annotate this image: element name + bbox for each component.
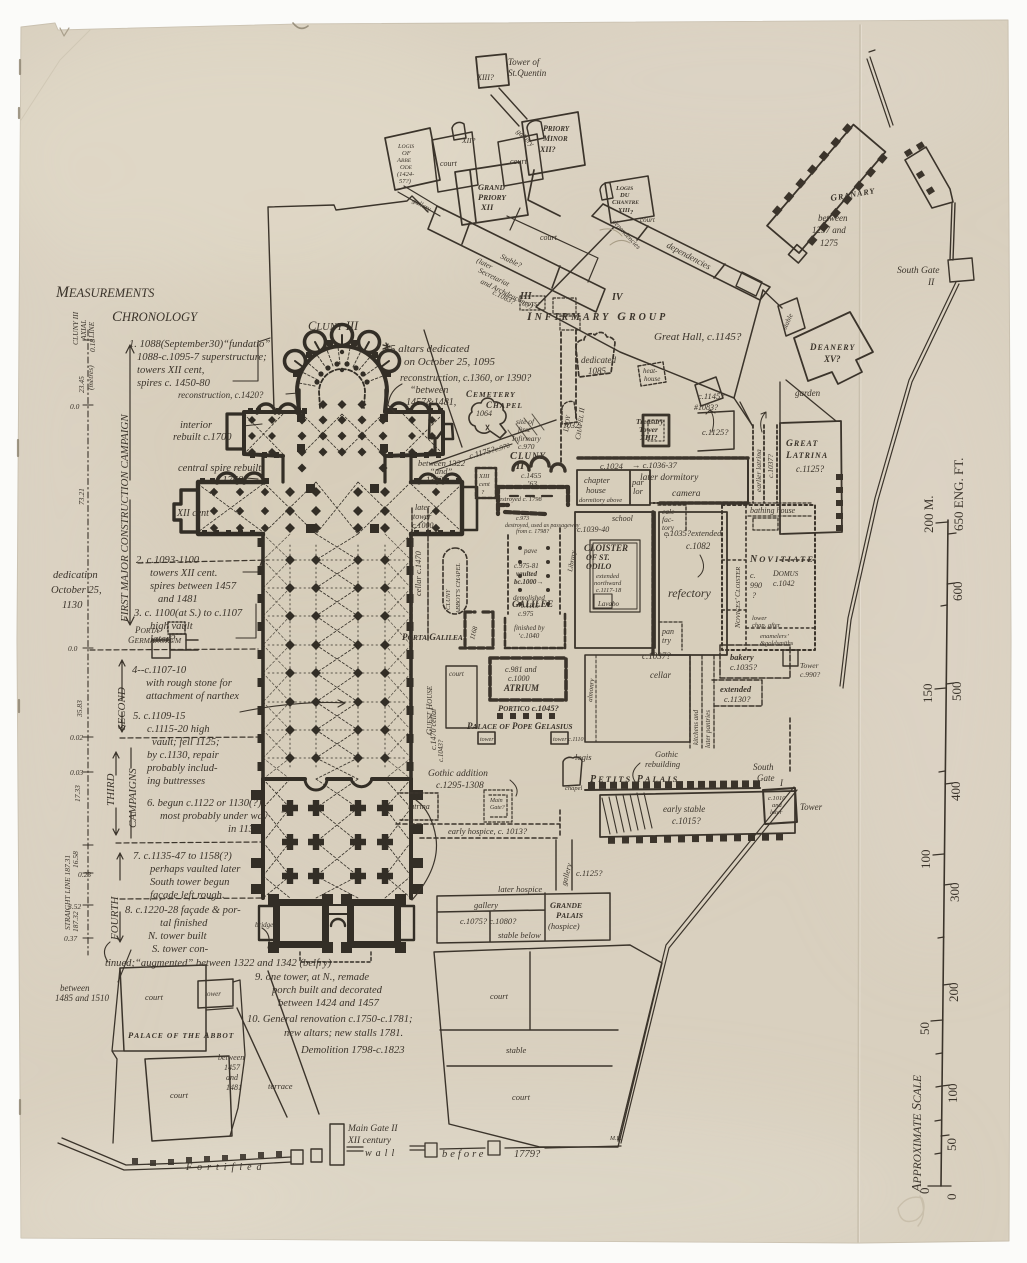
svg-text:cellar c.1470: cellar c.1470 [413,550,423,596]
svg-text:South: South [753,762,774,772]
svg-text:perhaps vaulted later: perhaps vaulted later [149,864,241,875]
svg-text:PALAIS: PALAIS [556,910,583,920]
svg-text:Gothic addition: Gothic addition [428,769,488,779]
svg-text:camera: camera [672,489,701,499]
svg-text:8. c.1220-28 façade & por-: 8. c.1220-28 façade & por- [125,905,241,916]
svg-text:c.1117-18: c.1117-18 [596,587,622,594]
svg-text:later hospice: later hospice [498,884,542,894]
svg-text:57?): 57?) [399,178,411,185]
svg-text:CLUNY: CLUNY [445,588,452,610]
svg-text:1130: 1130 [62,600,83,611]
svg-text:early stable: early stable [663,804,705,814]
svg-text:cellar: cellar [650,670,671,680]
svg-text:DEANERY: DEANERY [809,342,855,352]
svg-text:Demolition 1798-c.1823: Demolition 1798-c.1823 [300,1045,405,1056]
svg-text:1257 and: 1257 and [812,225,846,235]
svg-text:c.1082: c.1082 [686,541,711,551]
svg-text:Tower: Tower [800,802,823,812]
svg-text:and 1481: and 1481 [158,594,198,605]
svg-text:extended: extended [596,573,620,580]
svg-text:1064: 1064 [476,409,492,418]
svg-text:and: and [226,1073,239,1082]
svg-text:c.970: c.970 [518,442,535,451]
svg-text:17.33: 17.33 [73,785,82,802]
svg-text:Gothic: Gothic [655,749,678,759]
svg-text:LOGIS: LOGIS [615,185,633,192]
svg-text:spires between 1457: spires between 1457 [150,581,237,592]
svg-text:Tower of: Tower of [508,57,541,67]
svg-text:GRANDE: GRANDE [550,900,582,910]
svg-text:vaulted: vaulted [516,570,537,578]
svg-text:with rough stone for: with rough stone for [146,678,233,689]
svg-text:XV?: XV? [823,354,841,364]
svg-text:0.37: 0.37 [64,934,77,943]
svg-text:c.1125?: c.1125? [576,868,603,878]
svg-text:between: between [218,1053,244,1062]
svg-text:vault; fell 1125;: vault; fell 1125; [152,737,219,748]
svg-text:(metres): (metres) [86,365,95,390]
svg-text:1. 1088(September30)“fundatio”: 1. 1088(September30)“fundatio” [129,339,270,350]
svg-text:c.1024: c.1024 [600,461,624,471]
svg-text:200 M.: 200 M. [921,495,936,533]
svg-text:tal finished: tal finished [160,918,208,929]
svg-text:FIRST MAJOR CONSTRUCTION CAMPA: FIRST MAJOR CONSTRUCTION CAMPAIGN [119,414,131,623]
svg-text:ABBE: ABBE [396,157,412,164]
svg-text:attachment of narthex: attachment of narthex [146,691,239,702]
svg-text:1457: 1457 [224,1063,241,1072]
svg-text:St.Quentin: St.Quentin [508,68,547,78]
svg-text:100: 100 [945,1084,960,1104]
svg-text:1485 and 1510: 1485 and 1510 [55,993,110,1003]
svg-text:1779?: 1779? [514,1149,541,1160]
svg-text:c.1295-1308: c.1295-1308 [436,781,484,791]
svg-text:rebuilding: rebuilding [645,759,680,769]
svg-text:PALACE OF THE ABBOT: PALACE OF THE ABBOT [128,1030,234,1040]
svg-text:CAMPAIGNS: CAMPAIGNS [127,768,139,828]
svg-text:c.1000: c.1000 [412,521,434,530]
svg-text:gallery: gallery [474,900,498,910]
svg-text:refectory: refectory [668,586,712,600]
svg-text:Great Hall, c.1145?: Great Hall, c.1145? [654,331,742,343]
svg-text:II: II [927,278,935,288]
svg-text:later: later [415,503,431,512]
svg-text:court: court [440,159,458,168]
svg-text:court: court [145,992,164,1002]
svg-text:c.1115-20 high: c.1115-20 high [147,724,210,735]
svg-text:1481: 1481 [226,1083,242,1092]
svg-text:→ c.1036-37: → c.1036-37 [632,460,678,470]
svg-text:pave: pave [523,547,537,555]
svg-text:enamelers’: enamelers’ [760,633,789,640]
svg-text:NOVITIATE: NOVITIATE [749,554,815,565]
svg-text:court: court [512,1092,531,1102]
svg-text:school: school [612,514,634,523]
svg-text:most probably under way: most probably under way [160,811,268,822]
svg-text:XII?: XII? [461,136,476,145]
svg-text:LATRINA: LATRINA [785,451,828,461]
svg-text:Lavabo: Lavabo [597,600,620,608]
svg-text:DOMUS: DOMUS [772,569,799,578]
svg-text:XII: XII [480,202,494,212]
svg-text:LOGIS: LOGIS [397,143,414,150]
svg-text:GRAND: GRAND [478,182,506,192]
svg-text:Gate?: Gate? [490,805,505,811]
svg-text:dedication: dedication [53,570,98,581]
svg-text:dedicated: dedicated [581,355,616,365]
svg-text:extended: extended [720,684,752,694]
svg-text:IV: IV [611,292,624,303]
svg-text:probably includ-: probably includ- [146,763,218,774]
svg-text:600: 600 [950,582,965,602]
svg-text:tower c.1110: tower c.1110 [553,737,583,743]
svg-text:destroyed c. 1798: destroyed c. 1798 [496,496,543,503]
svg-text:c.1043?: c.1043? [437,739,445,762]
svg-text:APPROXIMATE SCALE: APPROXIMATE SCALE [910,1075,925,1193]
svg-text:ABBOT'S CHAPEL: ABBOT'S CHAPEL [455,563,462,615]
svg-text:c.1035?: c.1035? [730,662,758,672]
svg-text:XII century: XII century [347,1136,392,1146]
svg-text:650 ENG. FT.: 650 ENG. FT. [951,458,966,531]
svg-text:c.1039-40: c.1039-40 [577,525,609,534]
svg-text:16.58: 16.58 [71,851,80,868]
svg-text:c.1037?: c.1037? [766,454,775,478]
svg-text:OF: OF [402,150,412,157]
svg-text:c.1010: c.1010 [768,795,786,802]
svg-text:pan: pan [661,627,674,636]
svg-text:c.1145?: c.1145? [698,391,725,401]
svg-text:4--c.1107-10: 4--c.1107-10 [132,665,187,676]
svg-text:0: 0 [944,1194,959,1201]
svg-text:CHRONOLOGY: CHRONOLOGY [112,309,199,325]
svg-text:THIRD: THIRD [105,774,117,806]
svg-text:c.: c. [750,571,756,580]
svg-text:0.0: 0.0 [68,644,78,653]
svg-text:0.23: 0.23 [78,870,91,879]
svg-text:later dormitory: later dormitory [640,473,699,483]
svg-text:tower: tower [413,512,432,521]
svg-text:OF ST.: OF ST. [586,553,610,562]
svg-text:1275: 1275 [820,238,839,248]
svg-text:heat-: heat- [643,367,658,375]
svg-text:0.18: 0.18 [88,339,97,352]
svg-text:3.52: 3.52 [67,902,81,911]
svg-text:1032: 1032 [563,421,579,430]
svg-text:October 25,: October 25, [51,585,102,596]
svg-text:PRIORY: PRIORY [478,192,507,202]
svg-text:PORTA GALILEA: PORTA GALILEA [402,632,463,642]
svg-text:150: 150 [920,684,935,704]
svg-text:from c. 1798?: from c. 1798? [516,528,549,535]
svg-text:73.21: 73.21 [77,488,86,505]
svg-text:before: before [442,1149,486,1160]
svg-text:CEMETERY: CEMETERY [466,389,516,399]
svg-text:II: II [515,461,525,472]
svg-text:PRIORY: PRIORY [543,124,570,133]
svg-text:XII cent: XII cent [176,508,209,519]
svg-text:lower: lower [752,615,767,622]
svg-text:c.1000: c.1000 [508,674,530,683]
svg-text:c.1035?extended: c.1035?extended [664,528,722,538]
svg-text:finished by: finished by [514,624,545,632]
svg-text:stable below: stable below [498,930,541,940]
svg-text:3. c. 1100(at S.) to c.1107: 3. c. 1100(at S.) to c.1107 [133,608,243,619]
svg-text:South Gate: South Gate [897,266,939,276]
svg-text:interior: interior [180,420,213,431]
svg-text:Main: Main [489,798,503,804]
svg-text:ODE: ODE [400,164,413,171]
svg-text:reconstruction, c.1420?: reconstruction, c.1420? [178,390,264,400]
svg-text:bathing house: bathing house [750,506,796,515]
svg-text:garden: garden [795,388,821,398]
svg-text:1088-c.1095-7 superstructure;: 1088-c.1095-7 superstructure; [137,352,267,363]
svg-text:towers XII cent.: towers XII cent. [150,568,217,579]
svg-text:court: court [540,233,558,242]
svg-text:CHANTRE: CHANTRE [612,199,639,206]
svg-text:0.0: 0.0 [70,402,80,411]
svg-text:Fortified: Fortified [185,1162,267,1173]
svg-text:10. General renovation c.1750-: 10. General renovation c.1750-c.1781; [247,1014,413,1025]
svg-text:new altars; new stalls 1781.: new altars; new stalls 1781. [284,1028,403,1039]
svg-text:ODILO: ODILO [586,562,612,571]
svg-text:c.973: c.973 [516,516,529,522]
svg-text:XIII: XIII [478,473,490,480]
svg-text:PALACE OF POPE GELASIUS: PALACE OF POPE GELASIUS [467,721,573,731]
svg-text:terrace: terrace [268,1081,293,1091]
svg-text:between 1424 and 1457: between 1424 and 1457 [278,998,380,1009]
svg-text:S. tower con-: S. tower con- [152,944,209,955]
svg-text:c.1015?: c.1015? [672,816,701,826]
svg-text:court: court [170,1090,189,1100]
svg-text:spires c. 1450-80: spires c. 1450-80 [137,378,211,389]
svg-text:FOURTH: FOURTH [109,896,121,941]
svg-text:bakery: bakery [730,652,754,662]
svg-text:bc.1000→: bc.1000→ [514,578,543,586]
svg-text:early hospice, c. 1013?: early hospice, c. 1013? [448,826,528,836]
svg-text:chap. after: chap. after [752,622,781,629]
svg-text:wall: wall [365,1148,398,1159]
svg-text:300: 300 [947,883,962,903]
svg-text:MEASUREMENTS: MEASUREMENTS [55,284,155,301]
svg-text:0.02: 0.02 [70,733,83,742]
svg-text:latrina: latrina [408,802,430,811]
svg-text:earlier latrina: earlier latrina [754,449,763,492]
svg-text:1085: 1085 [588,366,607,376]
svg-text:1342?: 1342? [426,474,448,484]
svg-text:c.1042: c.1042 [773,579,795,588]
svg-text:(1424-: (1424- [397,171,414,178]
svg-text:c.1125?: c.1125? [702,427,729,437]
svg-text:990: 990 [750,581,762,590]
svg-text:cent: cent [479,481,490,488]
svg-text:M.B.: M.B. [609,1136,622,1142]
svg-text:c.975-81: c.975-81 [514,562,539,570]
svg-text:ATRIUM: ATRIUM [503,683,540,693]
svg-text:c.981 and: c.981 and [505,665,538,674]
svg-text:c.1130?: c.1130? [724,694,751,704]
svg-text:porch built and decorated: porch built and decorated [271,985,383,996]
svg-text:PORTA: PORTA [134,625,159,635]
svg-text:between: between [60,983,90,993]
svg-text:court: court [490,991,509,1001]
svg-text:0.03: 0.03 [70,768,83,777]
svg-text:bridge: bridge [255,921,273,929]
svg-text:chapter: chapter [584,475,611,485]
svg-text:50: 50 [944,1138,959,1151]
svg-text:?: ? [752,591,756,600]
svg-text:GALILEE: GALILEE [512,600,553,610]
svg-text:#1083?: #1083? [694,403,718,412]
svg-text:kitchens and: kitchens and [692,709,700,745]
svg-text:NOVICES’ CLOISTER: NOVICES’ CLOISTER [733,567,742,629]
svg-text:towers XII cent,: towers XII cent, [137,365,204,376]
svg-text:2. c.1093-1100: 2. c.1093-1100 [136,555,200,566]
svg-text:South tower begun: South tower begun [150,877,229,888]
svg-text:(hospice): (hospice) [548,921,580,931]
svg-text:35.83: 35.83 [75,700,84,718]
svg-text:CLOISTER: CLOISTER [584,543,628,553]
svg-text:XIII?: XIII? [476,73,494,82]
svg-text:try: try [662,636,671,645]
svg-text:200: 200 [946,983,961,1003]
svg-text:23.45: 23.45 [77,376,86,393]
svg-text:GUEST HOUSE: GUEST HOUSE [424,685,434,735]
svg-text:c.1037?: c.1037? [642,651,671,661]
svg-text:187.32: 187.32 [71,911,80,932]
svg-text:stable: stable [506,1045,527,1055]
svg-text:between: between [818,213,848,223]
svg-text:&goldsmiths: &goldsmiths [760,640,794,647]
svg-text:c.975: c.975 [518,610,534,618]
svg-text:house: house [644,375,660,383]
svg-text:50: 50 [917,1022,932,1035]
svg-text:c.990?: c.990? [800,670,820,679]
svg-text:house: house [586,485,606,495]
svg-text:rebuilt c.1700: rebuilt c.1700 [173,432,232,443]
svg-text:N. tower built: N. tower built [147,931,208,942]
svg-text:SECOND: SECOND [116,687,128,730]
svg-text:c.1125?: c.1125? [796,464,825,474]
svg-text:400: 400 [948,782,963,802]
svg-text:5. c.1109-15: 5. c.1109-15 [133,711,185,722]
svg-text:100: 100 [918,850,933,870]
svg-text:façade left rough.: façade left rough. [150,890,225,901]
svg-text:MINOR: MINOR [542,134,568,143]
svg-text:PORTICO c.1045?: PORTICO c.1045? [498,703,559,713]
svg-text:500: 500 [949,682,964,702]
svg-text:‘c.1040: ‘c.1040 [518,632,540,640]
svg-text:DU: DU [619,192,630,199]
svg-text:XIII?: XIII? [639,433,658,442]
svg-text:Tower: Tower [800,661,819,670]
svg-text:later pantries: later pantries [704,710,712,748]
svg-text:ing buttresses: ing buttresses [147,776,205,787]
svg-text:tower: tower [480,737,494,743]
svg-text:GOTS?: GOTS? [522,302,540,308]
svg-text:XIII: XIII [617,207,630,214]
svg-text:GREAT: GREAT [786,439,818,449]
svg-text:on October 25, 1095: on October 25, 1095 [404,356,496,368]
svg-text:Main Gate II: Main Gate II [347,1124,398,1134]
svg-text:reconstruction, c.1360, or 139: reconstruction, c.1360, or 1390? [400,373,531,384]
svg-text:lor: lor [633,486,644,496]
svg-text:court: court [449,670,465,678]
svg-text:c.1075? c.1080?: c.1075? c.1080? [460,916,517,926]
svg-text:XII?: XII? [539,145,556,154]
svg-text:chapel: chapel [565,785,583,792]
svg-text:by c.1130, repair: by c.1130, repair [147,750,220,761]
svg-text:logis: logis [575,752,592,762]
svg-text:6. begun c.1122 or 1130(?): 6. begun c.1122 or 1130(?) [147,798,262,809]
svg-text:tower: tower [205,990,221,998]
svg-text:7. c.1135-47 to 1158(?): 7. c.1135-47 to 1158(?) [133,851,232,862]
svg-text:northward: northward [594,580,622,587]
svg-text:dormitory above: dormitory above [579,497,622,504]
